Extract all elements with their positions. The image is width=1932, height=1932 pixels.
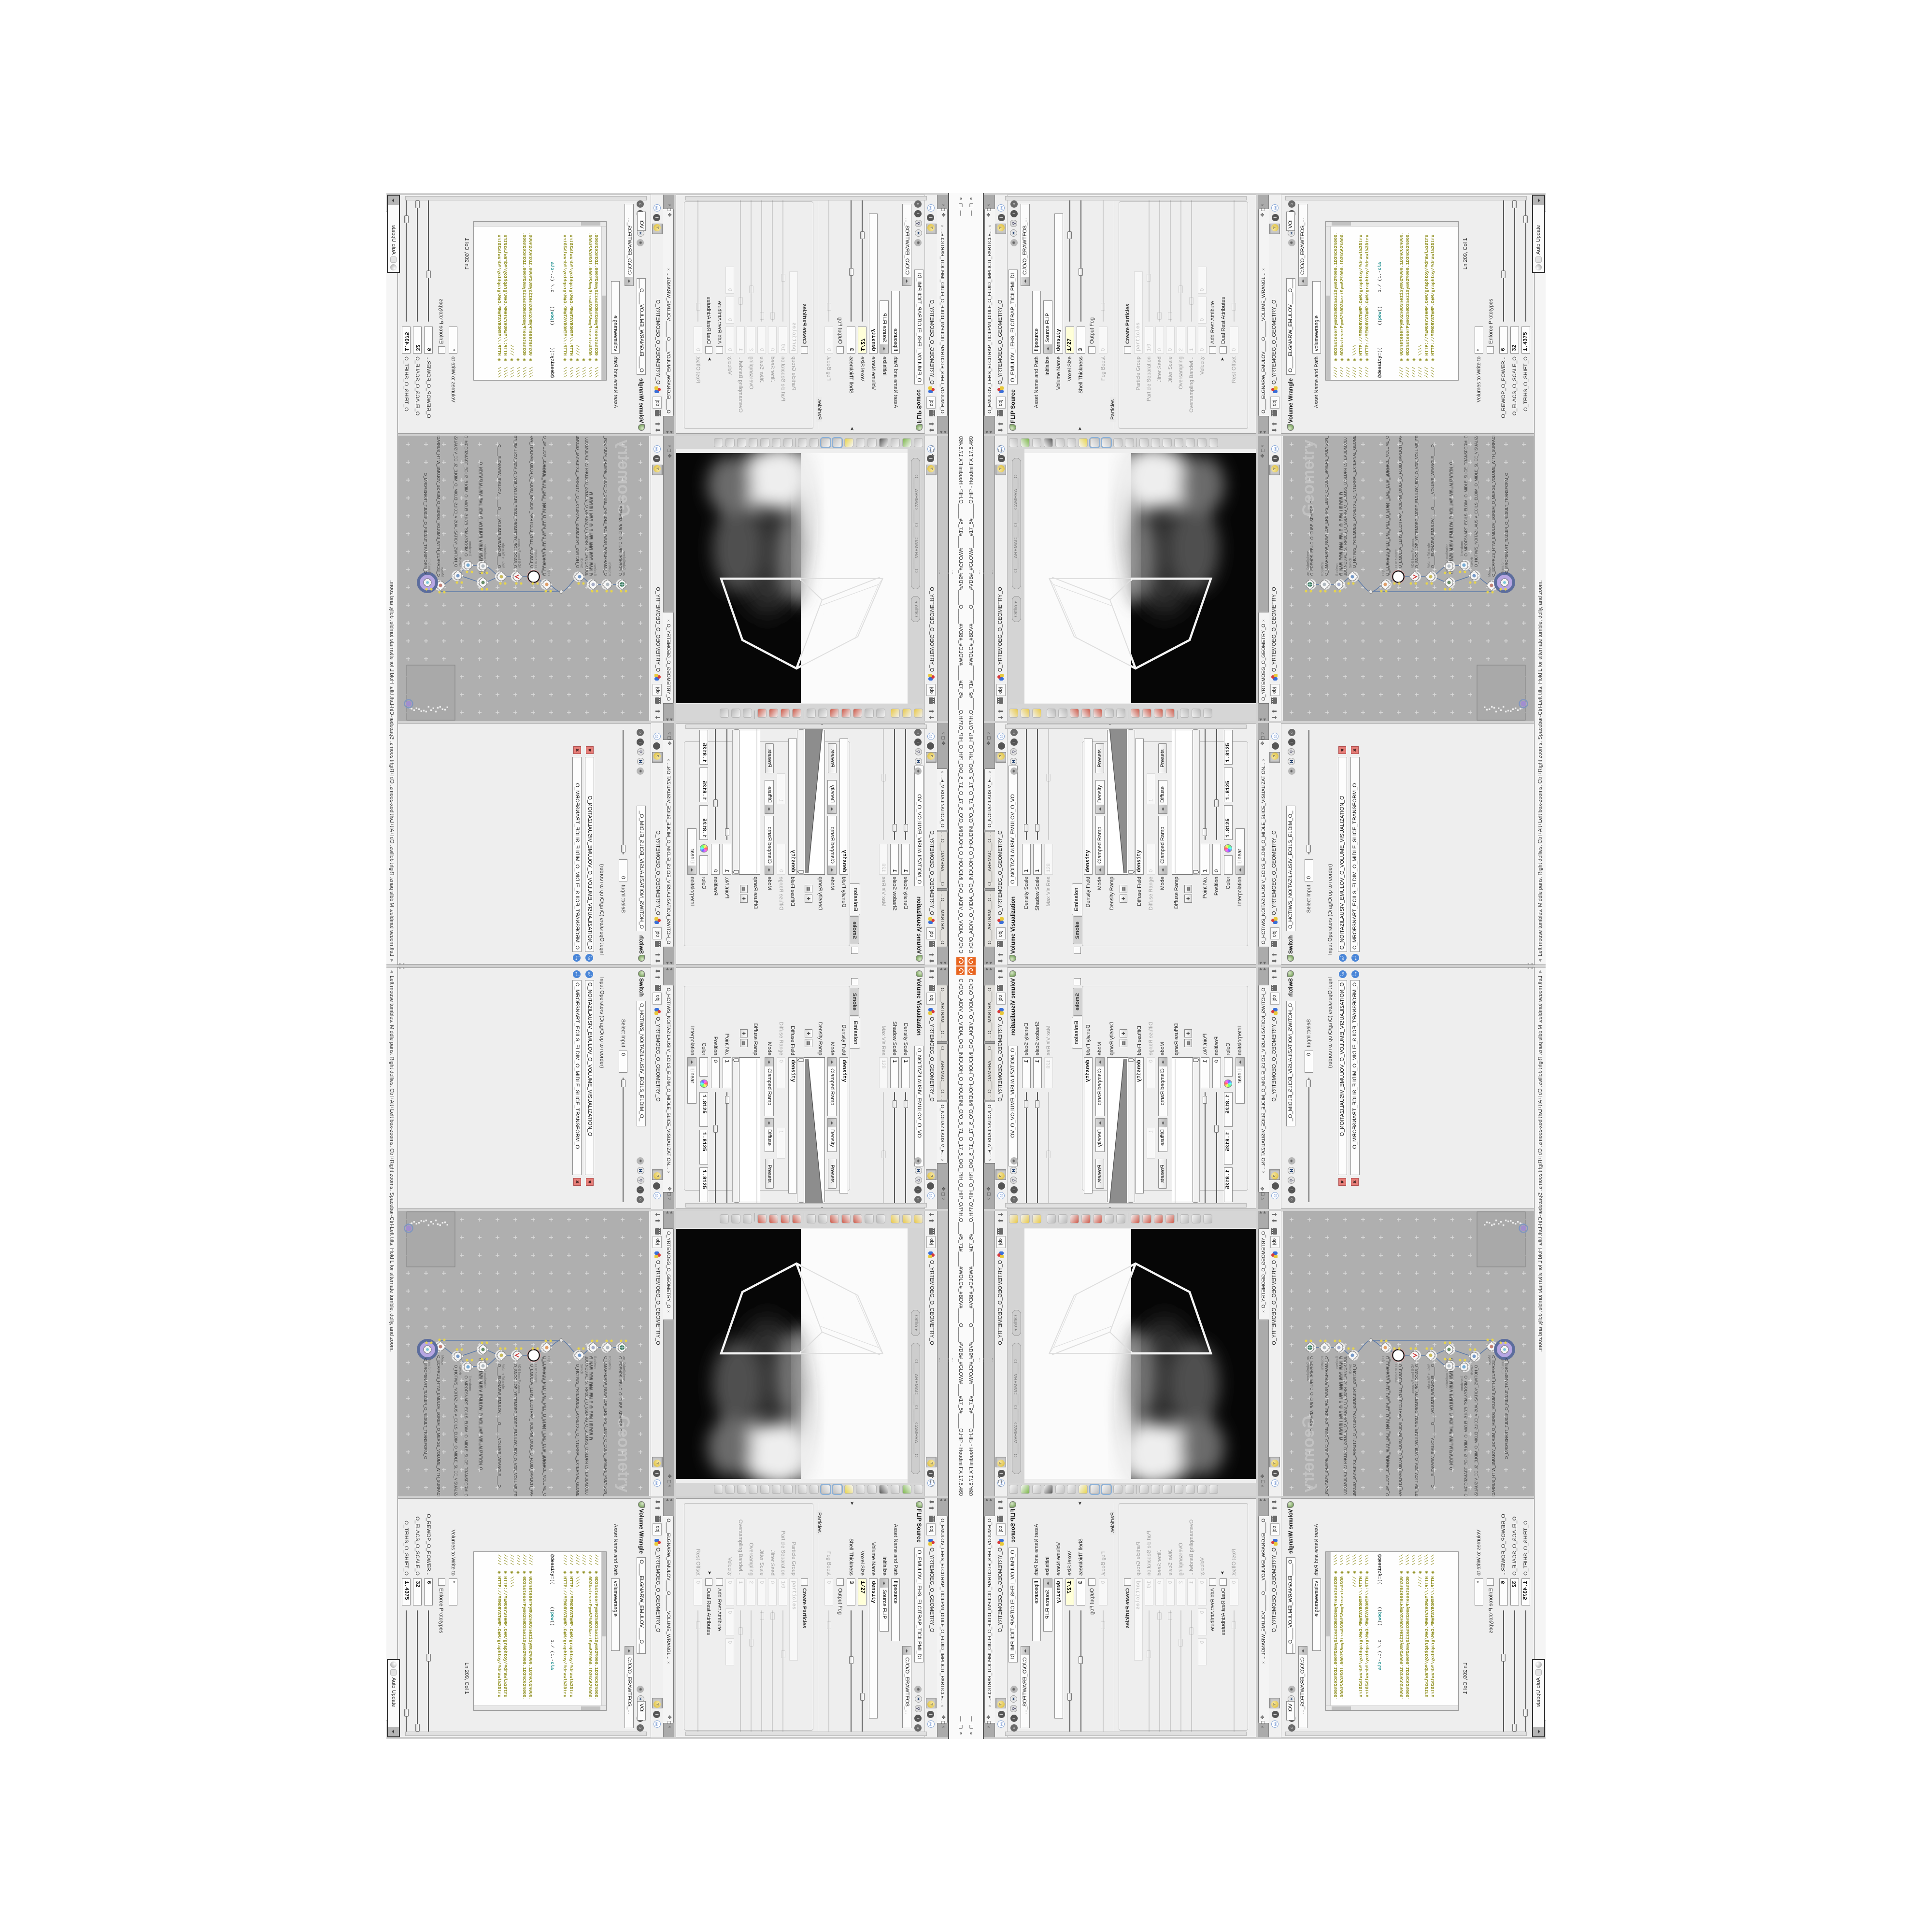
svg-text:O_HCTIWS_YRTEMOEG_LANRETXE_O_I: O_HCTIWS_YRTEMOEG_LANRETXE_O_INTERNAL_EX… [1352,436,1357,568]
svg-text:Geometry: Geometry [614,440,633,516]
svg-text:O____ELGNARW_EMULOV____O______: O____ELGNARW_EMULOV____O______VOLUME_WRA… [497,1364,501,1488]
svg-text:PolyWire: PolyWire [608,1356,611,1370]
svg-text:Merge: Merge [1488,1355,1492,1365]
svg-text:O_EMARFERIW_NOGYLOP_EREHPS_EBU: O_EMARFERIW_NOGYLOP_EREHPS_EBUC_O_CUBE_S… [1324,436,1329,576]
svg-text:FLIP Source: FLIP Source [534,549,537,568]
svg-text:O_SNOGILOP_YRTEMOEG_MORF_EMULO: O_SNOGILOP_YRTEMOEG_MORF_EMULOV_BDV_O_VD… [513,1364,517,1496]
svg-text:O_EREHPS_EBUC_O_CUBE_SPHERE_O: O_EREHPS_EBUC_O_CUBE_SPHERE_O [618,1356,622,1432]
svg-text:Switch: Switch [580,1364,583,1374]
svg-text:Merge: Merge [440,1355,444,1365]
svg-text:Transform: Transform [427,1358,431,1374]
svg-text:Clip: Clip [1382,1356,1385,1362]
svg-text:Clip: Clip [547,1356,550,1362]
svg-text:an_CubeSphere: an_CubeSphere [622,1356,625,1381]
svg-text:O_HCTIWS_NOITAZILAUSIV_ECILS_E: O_HCTIWS_NOITAZILAUSIV_ECILS_ELDIM_O_MID… [454,436,458,567]
svg-text:Transform: Transform [1501,1358,1505,1374]
svg-text:O_ECAFRUS_PILC_DNE_PILC_O_STAR: O_ECAFRUS_PILC_DNE_PILC_O_START_END_CLIP… [541,1356,546,1468]
svg-text:VDB from Polygons: VDB from Polygons [1411,1364,1415,1394]
svg-text:O_EMARFERIW_NOGYLOP_EREHPS_EBU: O_EMARFERIW_NOGYLOP_EREHPS_EBUC_O_CUBE_S… [603,1356,608,1496]
svg-text:O_EMULOV_LEHS_ELCITRAP_TICILPM: O_EMULOV_LEHS_ELCITRAP_TICILPMI_DIULF_O_… [1398,1364,1403,1496]
svg-text:O_NOITAZILAUSIV_EMULOV_O_VOLUM: O_NOITAZILAUSIV_EMULOV_O_VOLUME_VISUALIZ… [1450,1358,1454,1467]
svg-text:VDB from Polygons: VDB from Polygons [517,538,521,568]
svg-text:O_EMULOV_LEHS_ELCITRAP_TICILPM: O_EMULOV_LEHS_ELCITRAP_TICILPMI_DIULF_O_… [529,1364,534,1496]
svg-text:Switch: Switch [1471,1365,1474,1375]
svg-text:O_ECAFRUS_PILC_DNE_PILC_O_STAR: O_ECAFRUS_PILC_DNE_PILC_O_START_END_CLIP… [1386,1356,1391,1468]
svg-text:Geometry: Geometry [1299,440,1318,516]
svg-text:Switch: Switch [1349,558,1352,568]
svg-text:VDB from Polygons: VDB from Polygons [1411,538,1415,568]
svg-text:Merge: Merge [440,567,444,577]
svg-text:O_MROFSNART_TLUSER_O_RESULT_TR: O_MROFSNART_TLUSER_O_RESULT_TRANSFORM_O [423,1358,427,1459]
svg-text:O_EREHPS_EBUC_O_CUBE_SPHERE_O: O_EREHPS_EBUC_O_CUBE_SPHERE_O [1310,500,1314,576]
svg-text:Volume Wrangle: Volume Wrangle [501,1364,505,1389]
svg-text:O_MROFSNART_ECILS_ELDIM_O_MIDL: O_MROFSNART_ECILS_ELDIM_O_MIDLE_SLICE_TR… [1464,436,1468,556]
svg-text:O_MROFSNART_TLUSER_O_RESULT_TR: O_MROFSNART_TLUSER_O_RESULT_TRANSFORM_O [1505,1358,1509,1459]
svg-text:O_HCTIWS_NOITAZILAUSIV_ECILS_E: O_HCTIWS_NOITAZILAUSIV_ECILS_ELDIM_O_MID… [1474,436,1478,567]
svg-text:O_MROFSNART_ECILS_ELDIM_O_MIDL: O_MROFSNART_ECILS_ELDIM_O_MIDLE_SLICE_TR… [464,1376,468,1496]
svg-text:Boolean: Boolean [593,563,597,576]
svg-text:FLIP Source: FLIP Source [534,1364,537,1383]
svg-text:Switch: Switch [458,557,461,567]
svg-text:Switch: Switch [580,558,583,568]
svg-text:Switch: Switch [458,1365,461,1375]
svg-text:Transform: Transform [427,558,431,574]
svg-text:Transform: Transform [1461,541,1464,556]
svg-text:O_MROFSNART_TLUSER_O_RESULT_TR: O_MROFSNART_TLUSER_O_RESULT_TRANSFORM_O [1505,473,1509,574]
svg-text:Transform: Transform [468,1376,471,1391]
svg-text:Geometry: Geometry [1299,1416,1318,1492]
svg-text:PolyWire: PolyWire [608,562,611,576]
svg-text:Transform: Transform [468,541,471,556]
svg-text:O_MROFSNART_ECILS_ELDIM_O_MIDL: O_MROFSNART_ECILS_ELDIM_O_MIDLE_SLICE_TR… [1464,1376,1468,1496]
svg-text:O_EREHPS_EBUC_O_CUBE_SPHERE_O: O_EREHPS_EBUC_O_CUBE_SPHERE_O [618,500,622,576]
svg-text:an_CubeSphere: an_CubeSphere [622,551,625,576]
svg-text:JBO.ND3.PETS.TRPDLS_D_5SLVRG_O: JBO.ND3.PETS.TRPDLS_D_5SLVRG_O_GEMJSS_D.… [584,1356,589,1494]
svg-text:O_MROFSNART_ECILS_ELDIM_O_MIDL: O_MROFSNART_ECILS_ELDIM_O_MIDLE_SLICE_TR… [464,436,468,556]
svg-text:O_EMULOV_LEHS_ELCITRAP_TICILPM: O_EMULOV_LEHS_ELCITRAP_TICILPMI_DIULF_O_… [529,436,534,568]
svg-text:O_ECAFRUS_HTIW_EMULOV_EGREM_O_: O_ECAFRUS_HTIW_EMULOV_EGREM_O_MERGE_VOLU… [436,436,440,577]
svg-text:O_HCTIWS_YRTEMOEG_LANRETXE_O_I: O_HCTIWS_YRTEMOEG_LANRETXE_O_INTERNAL_EX… [575,436,580,568]
svg-text:FLIP Source: FLIP Source [1395,1364,1398,1383]
svg-text:O_HCTIWS_NOITAZILAUSIV_ECILS_E: O_HCTIWS_NOITAZILAUSIV_ECILS_ELDIM_O_MID… [1474,1365,1478,1496]
svg-text:Volume Wrangle: Volume Wrangle [1427,1364,1431,1389]
svg-text:Switch: Switch [1349,1364,1352,1374]
svg-text:O_ECAFRUS_PILC_DNE_PILC_O_STAR: O_ECAFRUS_PILC_DNE_PILC_O_START_END_CLIP… [541,464,546,576]
svg-text:PolyWire: PolyWire [1321,1356,1324,1370]
svg-text:O_HCTIWS_YRTEMOEG_LANRETXE_O_I: O_HCTIWS_YRTEMOEG_LANRETXE_O_INTERNAL_EX… [575,1364,580,1496]
svg-text:O_SNOGILOP_YRTEMOEG_MORF_EMULO: O_SNOGILOP_YRTEMOEG_MORF_EMULOV_BDV_O_VD… [513,436,517,568]
svg-text:Merge: Merge [1488,567,1492,577]
svg-text:FLIP Source: FLIP Source [1395,549,1398,568]
svg-text:O____ELGNARW_EMULOV____O______: O____ELGNARW_EMULOV____O______VOLUME_WRA… [1431,1364,1435,1488]
svg-text:O_EMARFERIW_NOGYLOP_EREHPS_EBU: O_EMARFERIW_NOGYLOP_EREHPS_EBUC_O_CUBE_S… [603,436,608,576]
svg-text:Boolean: Boolean [593,1356,597,1369]
svg-text:O_EMULOV_LEHS_ELCITRAP_TICILPM: O_EMULOV_LEHS_ELCITRAP_TICILPMI_DIULF_O_… [1398,436,1403,568]
svg-text:Clip: Clip [1382,570,1385,576]
svg-text:an_CubeSphere: an_CubeSphere [1307,551,1310,576]
svg-text:O_ECAFRUS_HTIW_EMULOV_EGREM_O_: O_ECAFRUS_HTIW_EMULOV_EGREM_O_MERGE_VOLU… [1492,436,1496,577]
svg-text:Transform: Transform [1501,558,1505,574]
svg-text:Transform: Transform [1461,1376,1464,1391]
svg-text:JBO.ND3.PETS.TRPDLS_D_5SLVRG_O: JBO.ND3.PETS.TRPDLS_D_5SLVRG_O_GEMJSS_D.… [584,438,589,576]
svg-text:Clip: Clip [547,570,550,576]
svg-text:O_SNOGILOP_YRTEMOEG_MORF_EMULO: O_SNOGILOP_YRTEMOEG_MORF_EMULOV_BDV_O_VD… [1415,1364,1419,1496]
svg-text:Volume Wrangle: Volume Wrangle [1427,543,1431,568]
svg-text:JBO.ND3.PETS.TRPDLS_D_5SLVRG_O: JBO.ND3.PETS.TRPDLS_D_5SLVRG_O_GEMJSS_D.… [1343,438,1348,576]
svg-text:PolyWire: PolyWire [1321,562,1324,576]
svg-text:O_HCTIWS_YRTEMOEG_LANRETXE_O_I: O_HCTIWS_YRTEMOEG_LANRETXE_O_INTERNAL_EX… [1352,1364,1357,1496]
svg-text:Boolean: Boolean [1335,563,1339,576]
svg-text:Switch: Switch [1471,557,1474,567]
svg-text:Geometry: Geometry [614,1416,633,1492]
svg-text:O_EREHPS_EBUC_O_CUBE_SPHERE_O: O_EREHPS_EBUC_O_CUBE_SPHERE_O [1310,1356,1314,1432]
svg-text:VDB from Polygons: VDB from Polygons [517,1364,521,1394]
svg-text:O_EMARFERIW_NOGYLOP_EREHPS_EBU: O_EMARFERIW_NOGYLOP_EREHPS_EBUC_O_CUBE_S… [1324,1356,1329,1496]
svg-text:an_CubeSphere: an_CubeSphere [1307,1356,1310,1381]
svg-text:O_ECAFRUS_PILC_DNE_PILC_O_STAR: O_ECAFRUS_PILC_DNE_PILC_O_START_END_CLIP… [1386,464,1391,576]
svg-text:O_ECAFRUS_HTIW_EMULOV_EGREM_O_: O_ECAFRUS_HTIW_EMULOV_EGREM_O_MERGE_VOLU… [436,1355,440,1496]
svg-text:O_NOITAZILAUSIV_EMULOV_O_VOLUM: O_NOITAZILAUSIV_EMULOV_O_VOLUME_VISUALIZ… [1450,465,1454,574]
svg-text:Volume Wrangle: Volume Wrangle [501,543,505,568]
svg-text:O____ELGNARW_EMULOV____O______: O____ELGNARW_EMULOV____O______VOLUME_WRA… [497,444,501,568]
svg-text:Boolean: Boolean [1335,1356,1339,1369]
svg-text:JBO.ND3.PETS.TRPDLS_D_5SLVRG_O: JBO.ND3.PETS.TRPDLS_D_5SLVRG_O_GEMJSS_D.… [1343,1356,1348,1494]
svg-text:O_ECAFRUS_HTIW_EMULOV_EGREM_O_: O_ECAFRUS_HTIW_EMULOV_EGREM_O_MERGE_VOLU… [1492,1355,1496,1496]
svg-text:O____ELGNARW_EMULOV____O______: O____ELGNARW_EMULOV____O______VOLUME_WRA… [1431,444,1435,568]
svg-text:O_NOITAZILAUSIV_EMULOV_O_VOLUM: O_NOITAZILAUSIV_EMULOV_O_VOLUME_VISUALIZ… [478,1358,482,1467]
svg-text:O_HCTIWS_NOITAZILAUSIV_ECILS_E: O_HCTIWS_NOITAZILAUSIV_ECILS_ELDIM_O_MID… [454,1365,458,1496]
svg-text:O_NOITAZILAUSIV_EMULOV_O_VOLUM: O_NOITAZILAUSIV_EMULOV_O_VOLUME_VISUALIZ… [478,465,482,574]
svg-text:O_SNOGILOP_YRTEMOEG_MORF_EMULO: O_SNOGILOP_YRTEMOEG_MORF_EMULOV_BDV_O_VD… [1415,436,1419,568]
svg-text:O_MROFSNART_TLUSER_O_RESULT_TR: O_MROFSNART_TLUSER_O_RESULT_TRANSFORM_O [423,473,427,574]
